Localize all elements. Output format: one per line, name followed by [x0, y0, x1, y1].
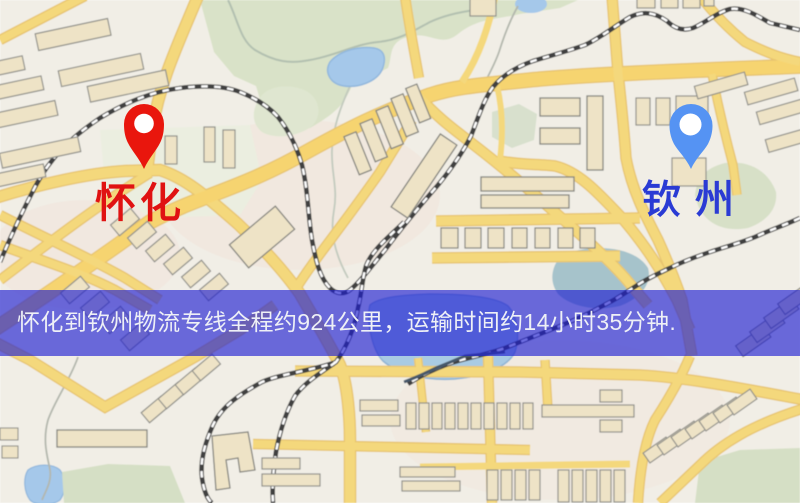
svg-text:怀化到钦州物流专线全程约924公里，运输时间约14小时35分: 怀化到钦州物流专线全程约924公里，运输时间约14小时35分钟. [17, 309, 676, 335]
svg-text:钦州: 钦州 [642, 179, 748, 222]
svg-text:怀化: 怀化 [95, 180, 185, 226]
